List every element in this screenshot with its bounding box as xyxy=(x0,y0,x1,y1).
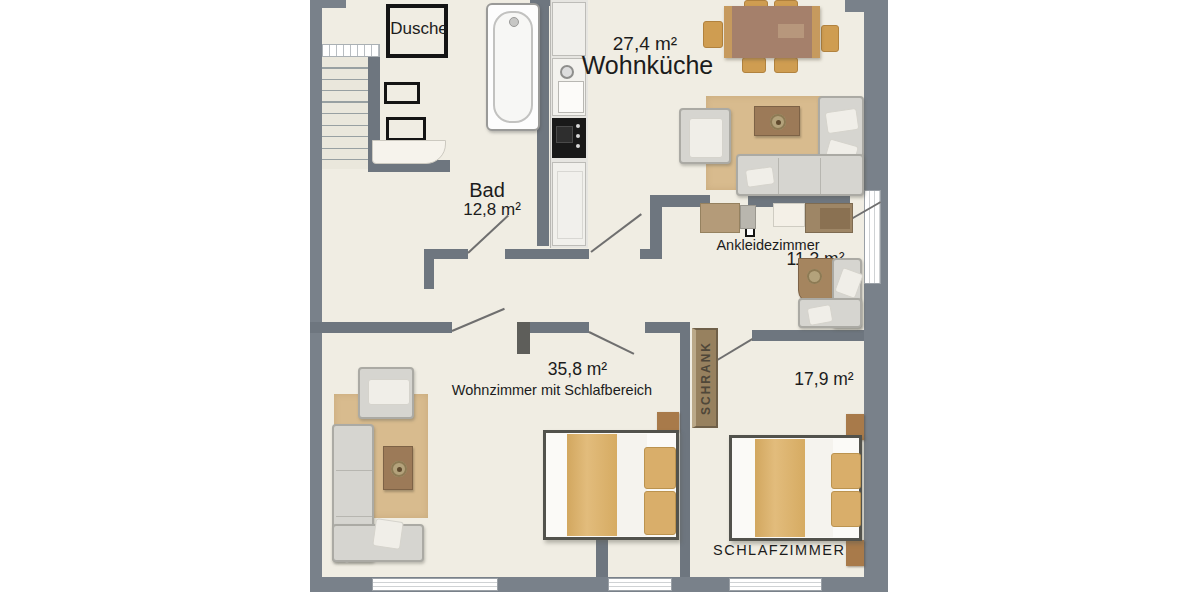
bed-pillow xyxy=(831,491,861,527)
sofa-seam xyxy=(778,158,779,194)
bathtub-basin xyxy=(493,11,533,123)
door-leaf xyxy=(517,322,530,354)
sofa-pillow xyxy=(372,518,404,550)
wall-segment xyxy=(845,0,888,12)
bed xyxy=(543,430,679,540)
wall-segment xyxy=(310,322,452,333)
room-label-wohnzimmer: Wohnzimmer mit Schlafbereich xyxy=(428,383,676,399)
bed-sheet xyxy=(617,434,647,536)
bed-pillow xyxy=(831,453,861,489)
dresser xyxy=(700,203,740,233)
wc-fixture xyxy=(386,117,426,141)
dining-table xyxy=(724,6,820,58)
armchair xyxy=(358,367,414,419)
staircase xyxy=(322,57,368,169)
room-label-bad: Bad xyxy=(457,179,517,201)
cooktop-knob xyxy=(576,124,580,128)
dining-chair xyxy=(742,57,766,73)
area-label-bad: 12,8 m² xyxy=(452,201,532,220)
dining-chair xyxy=(821,25,839,52)
sofa-seam xyxy=(336,516,372,517)
wardrobe-schrank: SCHRANK xyxy=(692,328,718,428)
dining-chair xyxy=(774,57,798,73)
sink-basin xyxy=(558,81,584,113)
window xyxy=(729,578,822,591)
bed xyxy=(729,435,862,541)
room-label-dusche: Dusche xyxy=(384,20,454,39)
wall-segment xyxy=(864,0,888,592)
bathtub xyxy=(486,3,540,131)
window xyxy=(608,578,672,591)
bed-sheet xyxy=(805,439,833,537)
cabinet xyxy=(805,203,853,233)
kitchen-cabinet xyxy=(552,2,586,56)
plant-icon xyxy=(397,467,402,472)
fridge-door xyxy=(557,171,583,239)
table-highlight xyxy=(778,24,804,38)
room-label-schrank: SCHRANK xyxy=(699,341,713,415)
shelf xyxy=(773,203,805,227)
cooktop-knob xyxy=(576,134,580,138)
wall-segment xyxy=(310,0,322,592)
corner-sofa-bottom xyxy=(798,298,862,328)
bed-pillow xyxy=(644,491,676,535)
nightstand xyxy=(657,412,679,432)
cooktop-knob xyxy=(576,144,580,148)
cooktop xyxy=(552,118,586,158)
armchair xyxy=(679,108,731,164)
sofa-pillow xyxy=(834,267,864,299)
bed-blanket xyxy=(755,439,805,537)
coffee-table xyxy=(383,446,413,490)
vanity-counter xyxy=(372,140,446,164)
wall-segment xyxy=(530,322,589,333)
nightstand xyxy=(846,540,864,566)
sofa-bottom xyxy=(332,524,424,562)
bed-blanket xyxy=(567,434,617,536)
floor-plan: Dusche Bad 12,8 m² 27,4 m² Wohnküche xyxy=(0,0,1200,600)
area-label-schlafzimmer: 17,9 m² xyxy=(758,370,890,389)
sofa-pillow xyxy=(825,108,860,134)
sofa-pillow xyxy=(745,166,775,188)
armchair-cushion xyxy=(689,118,723,158)
cooktop-burner xyxy=(556,126,573,143)
sofa-bottom xyxy=(736,154,864,196)
cabinet-door xyxy=(820,208,850,229)
sofa-seam xyxy=(820,158,821,194)
sofa-seam xyxy=(336,470,372,471)
wall-segment xyxy=(680,333,690,577)
room-label-schlafzimmer: SCHLAFZIMMER xyxy=(713,543,838,559)
wall-segment xyxy=(505,249,589,259)
bed-pillow xyxy=(644,447,676,489)
dining-chair xyxy=(703,21,723,48)
wall-segment xyxy=(424,249,434,289)
coffee-table xyxy=(754,106,800,136)
bathtub-drain xyxy=(509,17,519,27)
window xyxy=(372,578,498,591)
wall-segment xyxy=(310,0,346,8)
stair-landing-window xyxy=(322,44,380,57)
area-label-wohnzimmer: 35,8 m² xyxy=(515,360,640,379)
sofa-pillow xyxy=(807,304,834,326)
sink-fixture xyxy=(384,82,420,104)
plant-icon xyxy=(807,269,822,284)
wall-segment xyxy=(752,330,864,341)
plant-icon xyxy=(776,120,781,125)
fridge xyxy=(552,162,586,246)
wall-segment xyxy=(645,322,690,333)
room-label-wohnkueche: Wohnküche xyxy=(570,52,725,80)
stool xyxy=(740,205,756,229)
armchair-cushion xyxy=(368,379,410,405)
